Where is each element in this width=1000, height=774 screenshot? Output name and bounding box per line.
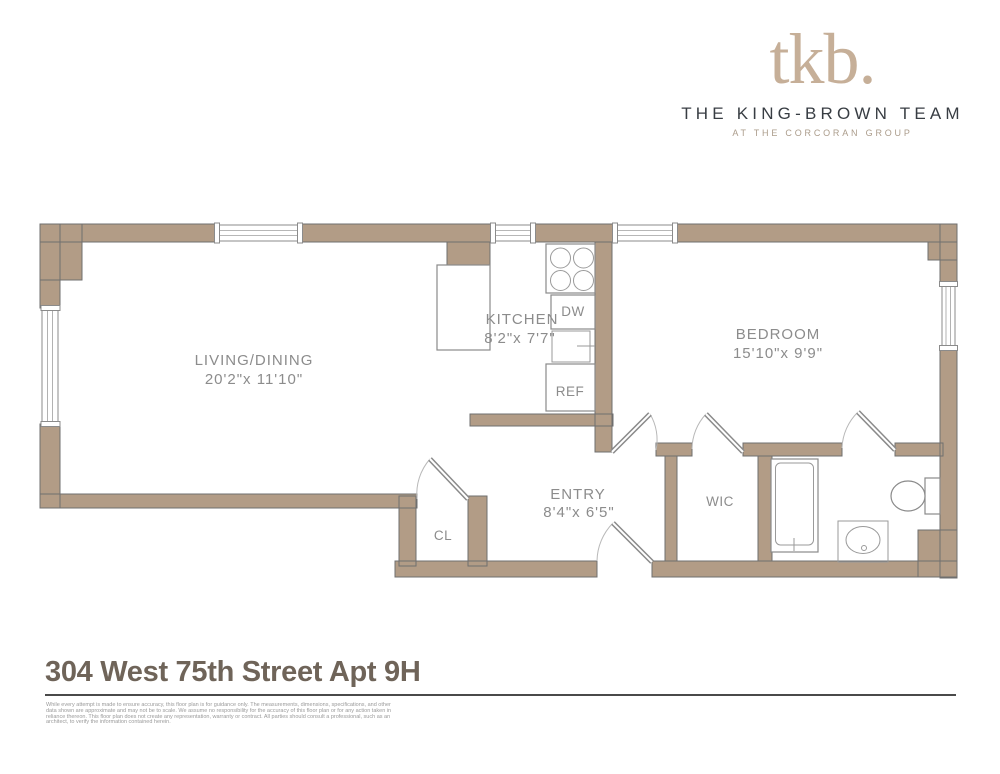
address-title: 304 West 75th Street Apt 9H — [45, 656, 420, 689]
kitchen-counter — [437, 265, 490, 350]
door-entrance — [597, 523, 652, 562]
room-dims-kitchen: 8'2"x 7'7" — [484, 330, 555, 347]
door-bedroom — [612, 414, 657, 452]
door-closet — [417, 459, 468, 499]
toilet-icon — [891, 478, 940, 514]
room-dims-bedroom: 15'10"x 9'9" — [733, 345, 823, 362]
window-living-top — [215, 223, 303, 243]
window-living-left — [41, 306, 60, 427]
bathtub-icon — [771, 459, 818, 552]
walls — [40, 224, 957, 578]
room-label-entry: ENTRY — [550, 486, 606, 503]
room-label-kitchen: KITCHEN — [486, 311, 559, 328]
window-bedroom-top — [613, 223, 678, 243]
window-kitchen-left-top — [491, 223, 536, 243]
room-dims-entry: 8'4"x 6'5" — [543, 504, 614, 521]
disclaimer-line: architect, to verify the information con… — [46, 720, 466, 726]
window-bedroom-right — [940, 282, 958, 351]
door-bathroom — [842, 412, 895, 450]
refrigerator-label: REF — [556, 384, 585, 399]
wall-segments — [40, 224, 957, 578]
room-dims-living-dining: 20'2"x 11'10" — [205, 371, 303, 388]
footer-divider — [45, 694, 956, 696]
kitchen-sink-icon — [552, 331, 595, 362]
vanity-sink-icon — [838, 521, 888, 562]
room-label-wic: WIC — [706, 494, 734, 509]
floorplan-page: tkb. THE KING-BROWN TEAM AT THE CORCORAN… — [0, 0, 1000, 774]
dishwasher-label: DW — [561, 304, 585, 319]
refrigerator-icon: REF — [546, 364, 595, 411]
stove-icon — [546, 244, 595, 293]
room-label-living-dining: LIVING/DINING — [195, 352, 314, 369]
room-label-closet: CL — [434, 528, 452, 543]
room-label-bedroom: BEDROOM — [736, 326, 821, 343]
disclaimer-text: While every attempt is made to ensure ac… — [46, 703, 466, 726]
door-wic — [692, 414, 743, 452]
